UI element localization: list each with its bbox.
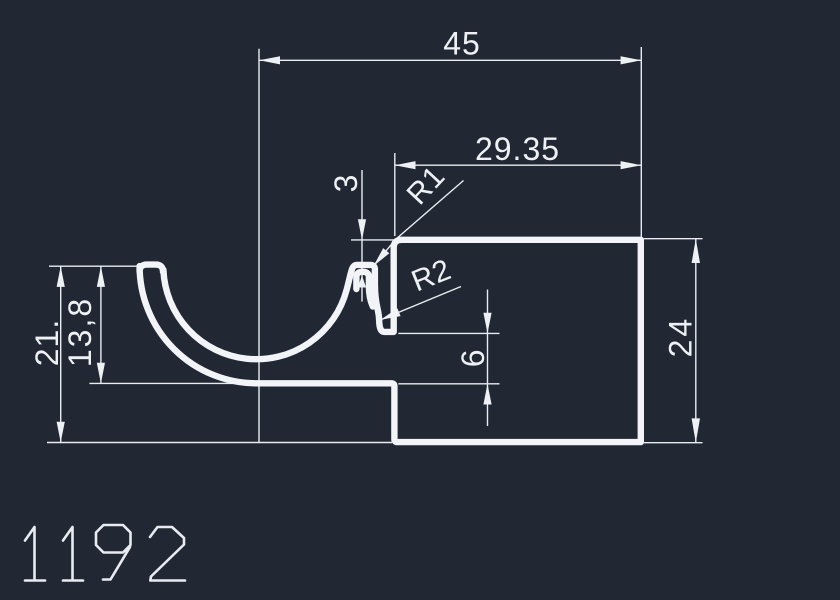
- svg-text:45: 45: [443, 26, 481, 62]
- svg-text:3: 3: [328, 174, 364, 193]
- svg-text:6: 6: [455, 348, 491, 367]
- svg-text:13,8: 13,8: [62, 297, 98, 367]
- svg-text:24: 24: [663, 316, 699, 358]
- svg-text:21.: 21.: [29, 319, 65, 366]
- svg-text:29.35: 29.35: [475, 131, 560, 167]
